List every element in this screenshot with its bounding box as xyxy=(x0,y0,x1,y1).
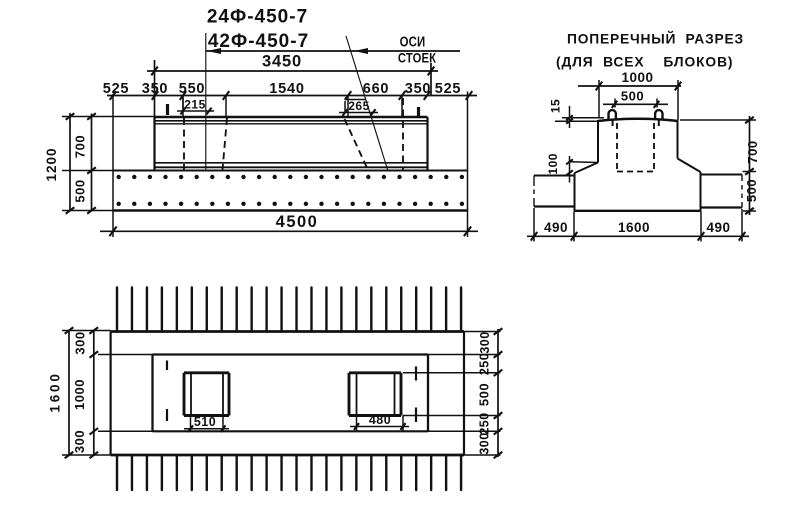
svg-text:1600: 1600 xyxy=(48,371,63,412)
svg-text:265: 265 xyxy=(348,99,370,113)
svg-text:700: 700 xyxy=(73,135,88,158)
svg-text:300: 300 xyxy=(478,432,492,454)
svg-text:ОСИ: ОСИ xyxy=(400,33,426,50)
svg-text:500: 500 xyxy=(621,89,644,104)
svg-text:660: 660 xyxy=(363,81,390,97)
svg-text:250: 250 xyxy=(478,412,492,434)
svg-text:24Ф-450-7: 24Ф-450-7 xyxy=(207,7,308,28)
svg-text:1540: 1540 xyxy=(269,81,304,97)
svg-text:700: 700 xyxy=(745,140,760,163)
svg-text:350: 350 xyxy=(142,81,169,97)
svg-text:490: 490 xyxy=(544,220,568,235)
svg-text:525: 525 xyxy=(435,81,462,97)
svg-text:СТОЕК: СТОЕК xyxy=(398,50,436,65)
svg-text:500: 500 xyxy=(73,179,88,202)
svg-text:300: 300 xyxy=(73,331,88,354)
svg-text:350: 350 xyxy=(405,81,432,97)
svg-text:1600: 1600 xyxy=(618,220,650,235)
svg-text:(ДЛЯ ВСЕХ БЛОКОВ): (ДЛЯ ВСЕХ БЛОКОВ) xyxy=(556,55,733,70)
svg-text:4500: 4500 xyxy=(276,213,319,231)
svg-text:100: 100 xyxy=(546,153,560,175)
svg-text:1200: 1200 xyxy=(44,147,59,181)
svg-text:15: 15 xyxy=(549,99,563,113)
svg-text:480: 480 xyxy=(369,413,391,427)
svg-text:ПОПЕРЕЧНЫЙ РАЗРЕЗ: ПОПЕРЕЧНЫЙ РАЗРЕЗ xyxy=(567,30,744,47)
svg-text:42Ф-450-7: 42Ф-450-7 xyxy=(208,31,309,52)
svg-text:3450: 3450 xyxy=(262,53,302,71)
svg-text:300: 300 xyxy=(478,331,492,353)
svg-text:500: 500 xyxy=(744,179,759,202)
svg-text:300: 300 xyxy=(72,430,87,453)
svg-text:525: 525 xyxy=(103,81,130,97)
svg-text:510: 510 xyxy=(194,415,216,429)
svg-text:500: 500 xyxy=(477,383,492,406)
svg-text:215: 215 xyxy=(184,98,206,112)
svg-text:550: 550 xyxy=(179,81,206,97)
svg-text:490: 490 xyxy=(706,220,730,235)
svg-text:250: 250 xyxy=(478,353,492,375)
svg-text:1000: 1000 xyxy=(621,70,653,85)
svg-text:1000: 1000 xyxy=(72,379,87,410)
